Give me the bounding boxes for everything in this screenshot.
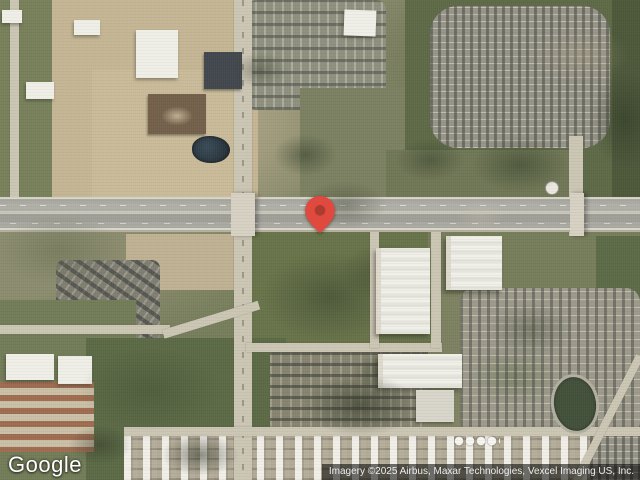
green-strip-west (0, 0, 56, 202)
map-pin-icon[interactable] (305, 196, 335, 233)
highway-overpass-main (231, 193, 255, 236)
big-box-store (136, 30, 178, 78)
attribution-bar: Imagery ©2025 Airbus, Maxar Technologies… (322, 464, 640, 480)
school-building (148, 94, 206, 134)
commercial-building-center (416, 390, 454, 422)
dark-roof-building (204, 52, 242, 89)
attribution-text: Imagery ©2025 Airbus, Maxar Technologies… (329, 466, 634, 477)
warehouse-access-road-east (431, 230, 441, 348)
red-roof-apartments-southwest (0, 382, 94, 452)
white-building-nw-3 (2, 10, 22, 23)
water-tower (545, 181, 559, 195)
highway-overpass-east (570, 193, 584, 236)
white-building-nw-2 (26, 82, 54, 99)
white-building-sw-2 (58, 356, 92, 384)
retention-pond (192, 136, 230, 163)
road-center-south (246, 343, 442, 352)
white-building-sw-1 (6, 354, 54, 380)
storage-tanks (454, 435, 500, 448)
map-viewport[interactable]: Google Imagery ©2025 Airbus, Maxar Techn… (0, 0, 640, 480)
tree-line-east (612, 0, 640, 202)
white-building-nw-1 (74, 20, 100, 35)
white-building-north (344, 9, 377, 36)
subdivision-northeast (430, 6, 610, 148)
road-southwest (0, 325, 170, 334)
distribution-warehouse-north (446, 236, 502, 290)
google-logo[interactable]: Google (8, 452, 82, 478)
dirt-lot (92, 70, 244, 200)
distribution-warehouse-south (378, 354, 462, 388)
road-west (10, 0, 19, 200)
distribution-warehouse-large (376, 248, 430, 334)
